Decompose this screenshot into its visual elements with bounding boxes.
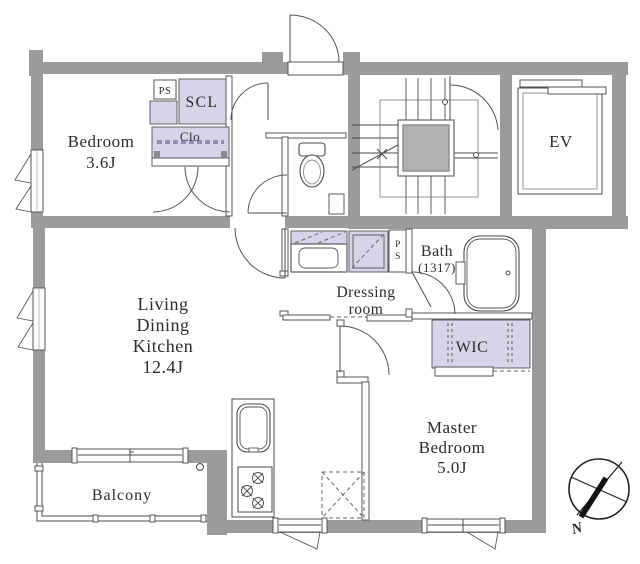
balcony: Balcony bbox=[35, 463, 207, 522]
bath-door bbox=[412, 272, 455, 314]
ps-bath-p: P bbox=[395, 240, 401, 250]
bath-label: Bath bbox=[421, 243, 453, 260]
master-line2: Bedroom bbox=[419, 438, 486, 457]
ldk-size: 12.4J bbox=[142, 357, 183, 377]
toilet bbox=[299, 143, 344, 214]
scl-label: SCL bbox=[186, 94, 219, 111]
closet-double-doors bbox=[153, 167, 230, 212]
walk-in-closet: WIC bbox=[432, 320, 530, 376]
ldk-line1: Living bbox=[138, 294, 189, 314]
storage-box bbox=[150, 101, 177, 124]
hall-door bbox=[231, 83, 268, 120]
floor-plan-canvas: EV P S WIC bbox=[0, 0, 640, 564]
master-size: 5.0J bbox=[437, 458, 467, 477]
kitchen-sink bbox=[237, 404, 270, 452]
clo-label: Clo bbox=[180, 129, 200, 144]
compass: N bbox=[569, 459, 629, 538]
ldk-door bbox=[235, 228, 285, 278]
elevator: EV bbox=[518, 80, 606, 194]
staircase bbox=[352, 78, 498, 214]
dressing-line1: Dressing bbox=[336, 284, 395, 301]
master-bedroom-door bbox=[340, 326, 389, 375]
kitchen-window bbox=[273, 518, 327, 549]
ldk-line3: Kitchen bbox=[133, 336, 193, 356]
entrance-door bbox=[290, 15, 339, 62]
washbasin bbox=[291, 231, 347, 272]
closet-track bbox=[152, 158, 229, 166]
compass-north-label: N bbox=[569, 520, 586, 539]
balcony-sliding-window bbox=[72, 448, 188, 463]
balcony-label: Balcony bbox=[92, 487, 152, 504]
bedroom-label-group: Bedroom 3.6J bbox=[68, 132, 135, 172]
gas-stove bbox=[238, 467, 272, 512]
ev-label: EV bbox=[549, 132, 573, 151]
master-window bbox=[422, 518, 505, 549]
stair-core bbox=[403, 125, 449, 171]
ldk-label-group: Living Dining Kitchen 12.4J bbox=[133, 294, 193, 377]
master-line1: Master bbox=[427, 418, 477, 437]
refrigerator-space bbox=[322, 472, 364, 518]
ps-bath-s: S bbox=[395, 252, 401, 262]
dressing-label-group: Dressing room bbox=[336, 284, 395, 318]
ldk-window bbox=[17, 288, 45, 350]
ps-top-label: PS bbox=[159, 86, 172, 97]
bath-pipe-space: P S bbox=[389, 230, 406, 272]
stairwell-door bbox=[450, 76, 498, 130]
pillar-mark bbox=[197, 464, 204, 471]
wic-sliding-door bbox=[435, 367, 493, 376]
compass-needle bbox=[581, 478, 606, 517]
bath-size: (1317) bbox=[418, 260, 456, 275]
entrance bbox=[288, 15, 343, 75]
wic-label: WIC bbox=[456, 339, 489, 356]
ldk-line2: Dining bbox=[136, 315, 189, 335]
dressing-line2: room bbox=[349, 301, 384, 318]
floor-plan: EV P S WIC bbox=[0, 0, 640, 564]
bath-label-group: Bath (1317) bbox=[418, 243, 456, 275]
bedroom-label: Bedroom bbox=[68, 132, 135, 151]
bedroom-size: 3.6J bbox=[86, 153, 116, 172]
master-label-group: Master Bedroom 5.0J bbox=[419, 418, 486, 477]
bedroom-window bbox=[15, 150, 43, 212]
washing-machine bbox=[349, 231, 388, 272]
bathtub bbox=[456, 236, 519, 311]
toilet-door bbox=[248, 175, 287, 213]
